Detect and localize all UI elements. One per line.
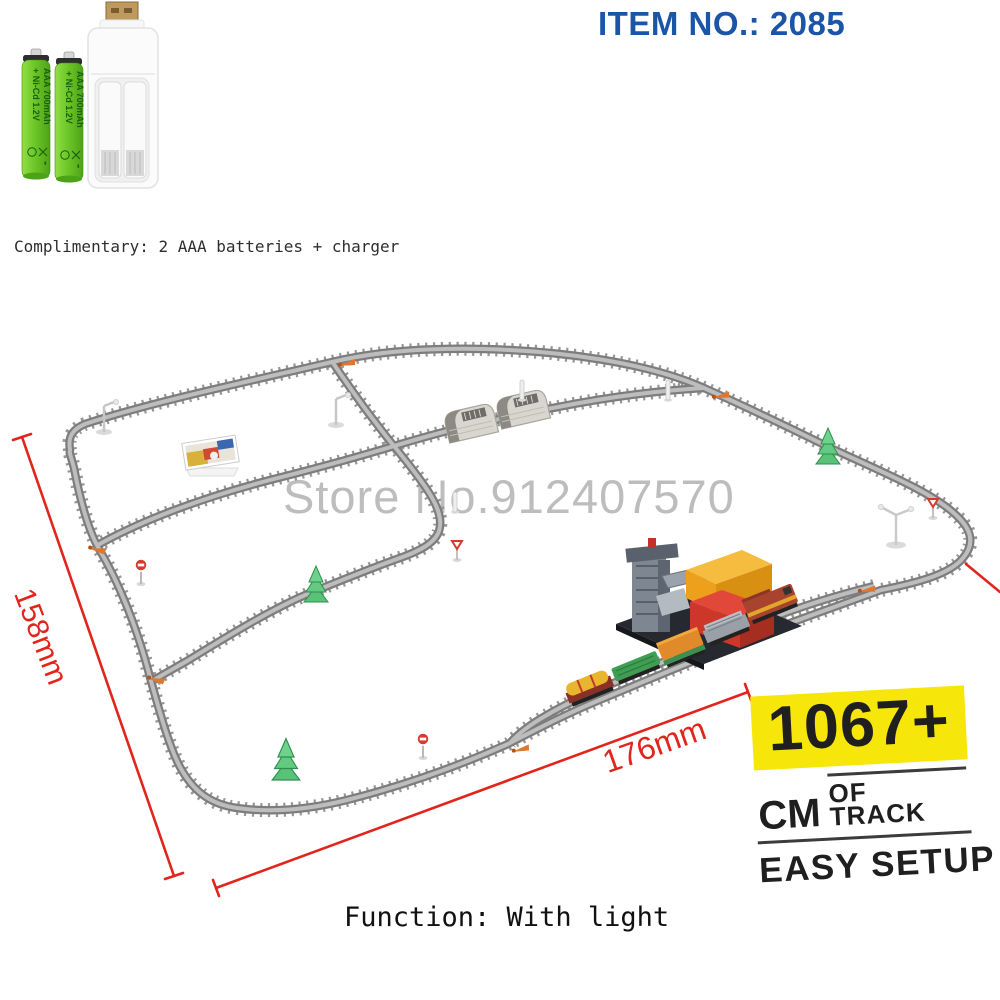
track-inner-diagonal — [154, 363, 440, 680]
badge-of-track-label: OF TRACK — [828, 766, 970, 829]
double-lamp-post — [879, 505, 914, 549]
billboard — [182, 435, 240, 476]
product-image-canvas: { "item_header": { "label": "ITEM NO.: 2… — [0, 0, 1000, 1000]
badge-cm-of-track: CM OF TRACK — [754, 759, 972, 844]
yield-sign — [452, 541, 462, 562]
dimension-line-right-partial — [966, 564, 1000, 592]
complimentary-note: Complimentary: 2 AAA batteries + charger — [14, 237, 399, 256]
item-number-label: ITEM NO.: 2085 — [598, 5, 845, 43]
tunnel-icon — [443, 403, 498, 443]
pine-tree — [272, 739, 300, 780]
track-inner-diagonal — [154, 363, 440, 680]
track-length-badge: 1067+ CM OF TRACK EASY SETUP — [750, 685, 974, 891]
stop-sign — [135, 559, 147, 586]
badge-track-length: 1067+ — [750, 685, 968, 770]
yield-sign — [928, 499, 938, 520]
track-inner-diagonal — [154, 363, 440, 680]
function-note: Function: With light — [344, 902, 669, 933]
lamp-post — [328, 393, 351, 429]
signal-post — [451, 492, 459, 514]
badge-cm-label: CM — [758, 797, 822, 833]
stop-sign — [417, 733, 429, 760]
